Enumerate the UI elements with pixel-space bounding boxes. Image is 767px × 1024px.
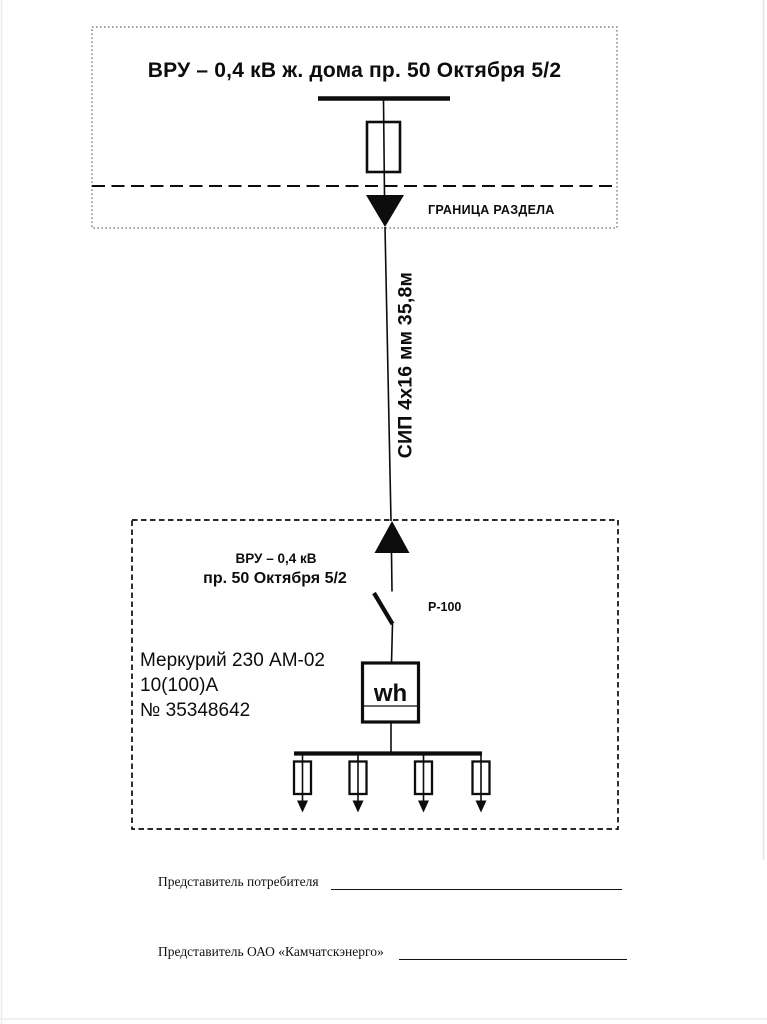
disconnector-lower-lead: [392, 624, 393, 663]
feeder-arrow-down: [297, 801, 308, 813]
supply-section-title: ВРУ – 0,4 кВ ж. дома пр. 50 Октября 5/2: [92, 59, 617, 83]
supply-drop-line: [384, 100, 385, 195]
consumer-arrow-up: [375, 521, 410, 553]
meter-model: Меркурий 230 АМ-02: [140, 648, 325, 673]
feeder-arrow-down: [418, 801, 429, 813]
signature-consumer-line: [331, 889, 622, 890]
disconnector-blade: [374, 593, 393, 624]
disconnector-label: Р-100: [428, 600, 461, 614]
consumer-vru-name-line2: пр. 50 Октября 5/2: [190, 570, 360, 588]
meter-info-block: Меркурий 230 АМ-02 10(100)А № 35348642: [140, 648, 325, 723]
feeder-arrow-down: [353, 801, 364, 813]
diagram-graphics: [0, 0, 767, 1024]
single-line-diagram-page: ВРУ – 0,4 кВ ж. дома пр. 50 Октября 5/2 …: [0, 0, 767, 1024]
disconnector-upper-lead: [392, 553, 393, 592]
signature-utility-label: Представитель ОАО «Камчатскэнерго»: [158, 944, 384, 960]
meter-wh-symbol-text: wh: [362, 680, 419, 708]
signature-consumer-label: Представитель потребителя: [158, 874, 319, 890]
cable-line: [385, 227, 391, 521]
meter-serial: № 35348642: [140, 698, 325, 723]
supply-section-box: [92, 27, 617, 228]
boundary-label: ГРАНИЦА РАЗДЕЛА: [428, 203, 555, 217]
boundary-arrow-down: [366, 195, 404, 227]
signature-utility-line: [399, 959, 627, 960]
feeder-arrow-down: [476, 801, 487, 813]
consumer-vru-name-line1: ВРУ – 0,4 кВ: [196, 551, 356, 566]
cable-label: СИП 4х16 мм 35,8м: [395, 272, 418, 458]
meter-rating: 10(100)А: [140, 673, 325, 698]
